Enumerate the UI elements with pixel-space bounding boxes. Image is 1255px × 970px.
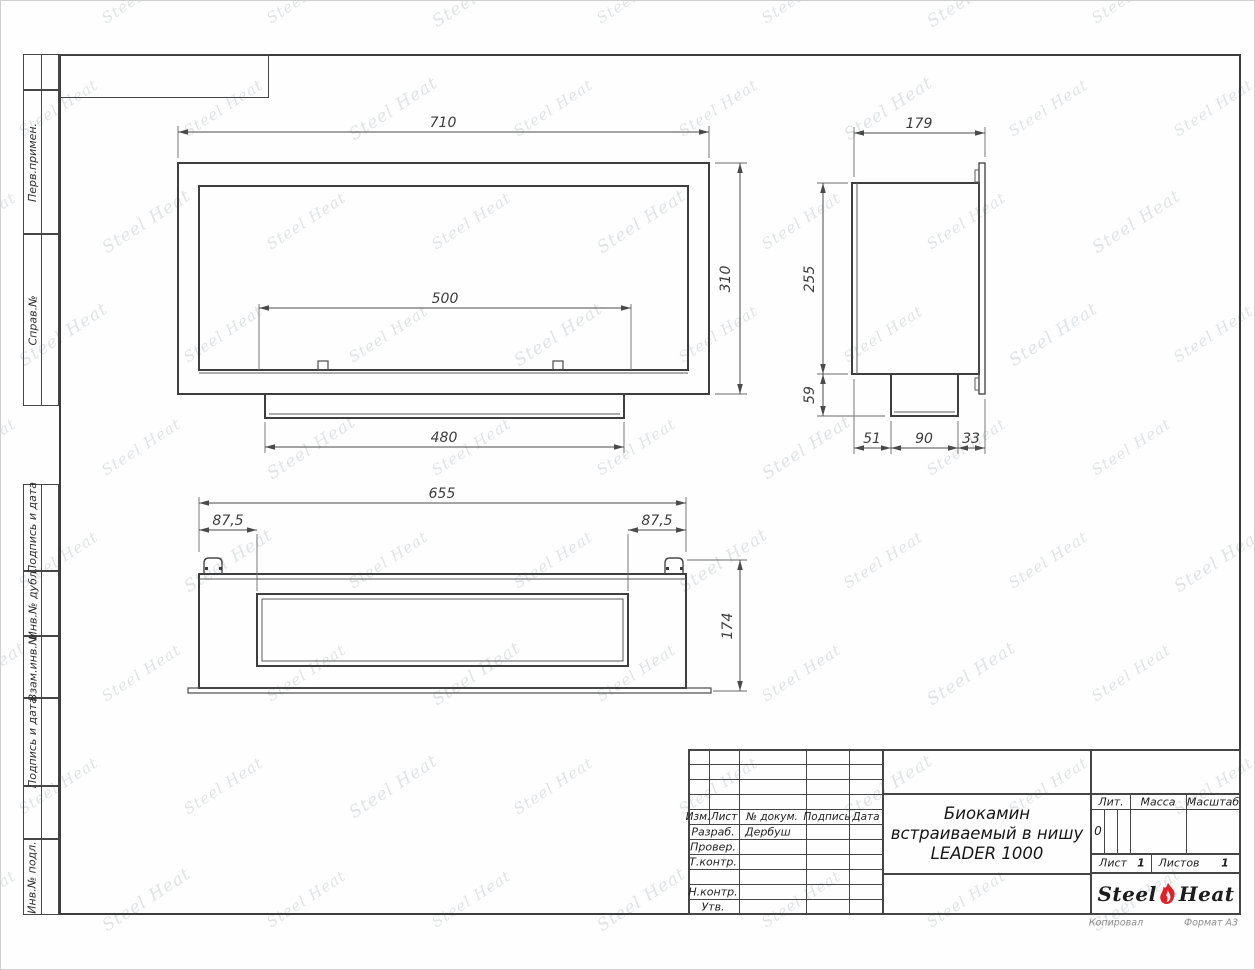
bottom-hook-right — [665, 558, 683, 574]
dim-front-height: 310 — [718, 266, 734, 293]
dim-bottom-height: 174 — [720, 613, 736, 640]
col-header-sign: Подпись — [803, 811, 850, 823]
dim-front-width: 710 — [430, 115, 457, 131]
side-extension-lines — [817, 127, 985, 454]
copied-label: Копировал — [1089, 918, 1143, 929]
front-outer-body — [178, 163, 709, 394]
dim-bottom-width: 655 — [429, 486, 456, 502]
bottom-view: 655 87,5 87,5 174 — [188, 486, 747, 693]
dim-bottom-offset-left: 87,5 — [212, 513, 243, 529]
role-nkontr: Н.контр. — [688, 886, 737, 899]
dim-bottom-offset-right: 87,5 — [641, 513, 672, 529]
front-view: 710 310 500 480 — [178, 115, 747, 453]
flame-icon — [1159, 882, 1177, 905]
bottom-body — [199, 574, 686, 688]
hook-detail — [219, 567, 222, 570]
front-burner-tab-left — [318, 361, 328, 370]
steelheat-logo: Steel Heat — [1092, 873, 1240, 914]
dim-front-opening: 500 — [432, 291, 459, 307]
dim-side-tray-height: 59 — [802, 386, 818, 404]
role-tkontr: Т.контр. — [689, 856, 737, 869]
bottom-burner-opening — [257, 594, 628, 666]
dim-side-seg2: 90 — [915, 431, 933, 447]
lit-header: Лит. — [1098, 796, 1123, 809]
front-extension-lines — [178, 126, 747, 453]
role-razrab-name: Дербуш — [745, 826, 791, 839]
side-view: 179 255 59 51 90 33 — [802, 116, 985, 454]
sheets-total: 1 — [1221, 857, 1229, 870]
sheet-label: Лист — [1099, 857, 1127, 870]
sheet-number: 1 — [1137, 857, 1145, 870]
mass-header: Масса — [1140, 796, 1175, 809]
front-burner-tab-right — [553, 361, 563, 370]
front-glass-opening — [199, 186, 688, 370]
title-line-1: Биокамин — [944, 804, 1030, 824]
title-line-2: встраиваемый в нишу — [891, 824, 1084, 844]
col-header-date: Дата — [852, 811, 879, 823]
role-razrab: Разраб. — [691, 826, 734, 839]
logo-steel-text: Steel — [1097, 882, 1156, 906]
col-header-izm: Изм. — [686, 811, 711, 823]
role-utv: Утв. — [701, 901, 724, 914]
dim-side-seg3: 33 — [962, 431, 980, 447]
sheets-label: Листов — [1158, 857, 1199, 870]
bottom-dimension-lines — [199, 503, 740, 691]
role-prover: Провер. — [690, 841, 736, 854]
bottom-burner-opening-inner — [262, 599, 623, 661]
format-label: Формат А3 — [1184, 918, 1238, 929]
dim-front-tray: 480 — [431, 430, 458, 446]
dim-side-depth: 179 — [906, 116, 933, 132]
hook-detail — [205, 567, 208, 570]
col-header-doc: № докум. — [746, 811, 798, 823]
drawing-title: Биокамин встраиваемый в нишу LEADER 1000 — [884, 795, 1090, 873]
logo-heat-text: Heat — [1179, 882, 1235, 906]
bottom-hook-left — [204, 558, 222, 574]
hook-detail — [666, 567, 669, 570]
front-dimension-lines — [178, 132, 740, 447]
lit-value: 0 — [1094, 824, 1102, 838]
side-dimension-lines — [823, 133, 985, 448]
side-tray-box — [891, 374, 958, 416]
side-body — [852, 183, 979, 374]
scale-header: Масштаб — [1187, 796, 1239, 809]
hook-detail — [680, 567, 683, 570]
col-header-list: Лист — [711, 811, 738, 823]
drawing-sheet: Steel HeatSteel HeatSteel HeatSteel Heat… — [0, 0, 1255, 970]
dim-side-height: 255 — [802, 266, 818, 293]
title-line-3: LEADER 1000 — [931, 844, 1044, 864]
dim-side-seg1: 51 — [863, 431, 881, 447]
